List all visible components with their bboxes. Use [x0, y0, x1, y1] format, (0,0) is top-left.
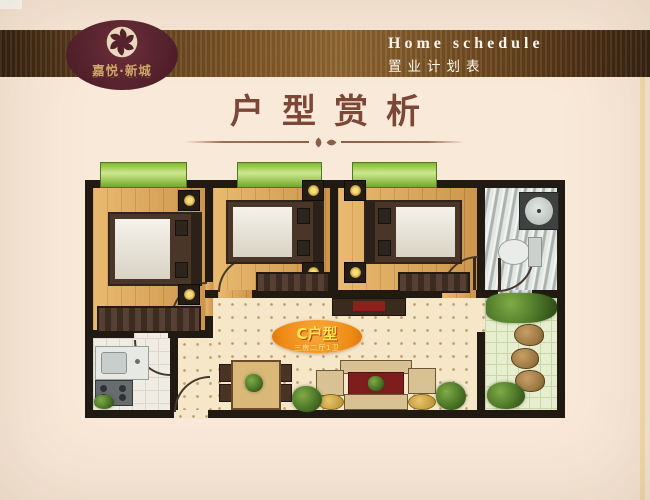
- balcony-passage: [477, 298, 485, 332]
- sink: [101, 352, 127, 374]
- nightstand-lamp: [302, 180, 324, 201]
- header-title-cn: 置业计划表: [388, 55, 544, 75]
- header-titles: Home schedule 置业计划表: [388, 35, 544, 75]
- pinwheel-flower-icon: [105, 25, 139, 59]
- armchair: [408, 368, 436, 394]
- wall: [205, 180, 213, 282]
- plant: [292, 386, 322, 412]
- wardrobe: [97, 306, 201, 333]
- title-divider: [185, 136, 465, 148]
- wall: [85, 410, 174, 418]
- header-title-en: Home schedule: [388, 35, 544, 53]
- pillow: [297, 208, 310, 224]
- page-title: 户型赏析: [0, 84, 650, 133]
- plant: [487, 382, 525, 409]
- burner: [119, 394, 126, 401]
- unit-badge-label: C户型: [272, 323, 362, 344]
- stepping-stone: [511, 348, 539, 369]
- sofa-bench: [344, 394, 408, 410]
- wall: [477, 180, 485, 298]
- wall: [330, 180, 338, 298]
- headboard: [191, 214, 200, 284]
- bed: [226, 200, 324, 264]
- armchair: [316, 370, 344, 396]
- vanity: [519, 192, 559, 230]
- coffee-rug: [348, 372, 404, 396]
- drain: [537, 209, 541, 213]
- bed: [364, 200, 462, 264]
- toilet-tank: [528, 237, 542, 267]
- nightstand-lamp: [178, 190, 200, 211]
- bed: [108, 212, 202, 286]
- headboard: [313, 202, 322, 262]
- divider-line: [341, 141, 465, 143]
- poster: Home schedule 置业计划表 嘉悦·新城 — · · — · · — …: [0, 0, 650, 500]
- leaf-ornament-icon: [314, 137, 324, 147]
- balcony-plants: [486, 293, 557, 323]
- wall: [477, 332, 485, 418]
- plant: [436, 382, 466, 410]
- tv-console: [332, 298, 406, 316]
- window-1: [100, 162, 187, 188]
- stepping-stone: [514, 324, 544, 346]
- pouf: [318, 394, 344, 410]
- mattress: [115, 219, 170, 279]
- pouf: [408, 394, 436, 410]
- pillow: [378, 240, 391, 256]
- divider-line: [185, 141, 309, 143]
- unit-badge: C户型 三房二厅1卫: [272, 320, 362, 353]
- wall: [208, 410, 565, 418]
- leaf-ornament-icon: [327, 137, 337, 147]
- nightstand-lamp: [178, 284, 200, 305]
- headboard: [366, 202, 375, 262]
- dresser: [398, 272, 470, 293]
- pillow: [175, 220, 188, 236]
- wardrobe: [256, 272, 330, 293]
- pillow: [175, 262, 188, 278]
- mattress: [396, 207, 455, 257]
- pillow: [378, 208, 391, 224]
- toilet: [498, 236, 542, 266]
- brand-tagline: — · · — · · — · · —: [66, 76, 178, 81]
- burner: [100, 385, 107, 392]
- corner-artifact: [0, 0, 22, 9]
- wall: [85, 180, 93, 418]
- unit-badge-subtitle: 三房二厅1卫: [272, 343, 362, 353]
- table-plant: [245, 374, 263, 392]
- bedroom-3-door-leaf: [473, 258, 476, 290]
- faucet: [135, 359, 140, 364]
- mattress: [233, 207, 292, 257]
- burner: [119, 385, 126, 392]
- pillow: [297, 240, 310, 256]
- nightstand-lamp: [344, 180, 366, 201]
- toilet-bowl: [498, 239, 530, 265]
- plant: [94, 395, 114, 409]
- rug-plant: [368, 376, 384, 391]
- kitchen-counter: [95, 346, 149, 380]
- tv-decor: [353, 301, 385, 311]
- brand-logo: 嘉悦·新城 — · · — · · — · · —: [66, 20, 178, 90]
- nightstand-lamp: [344, 262, 366, 283]
